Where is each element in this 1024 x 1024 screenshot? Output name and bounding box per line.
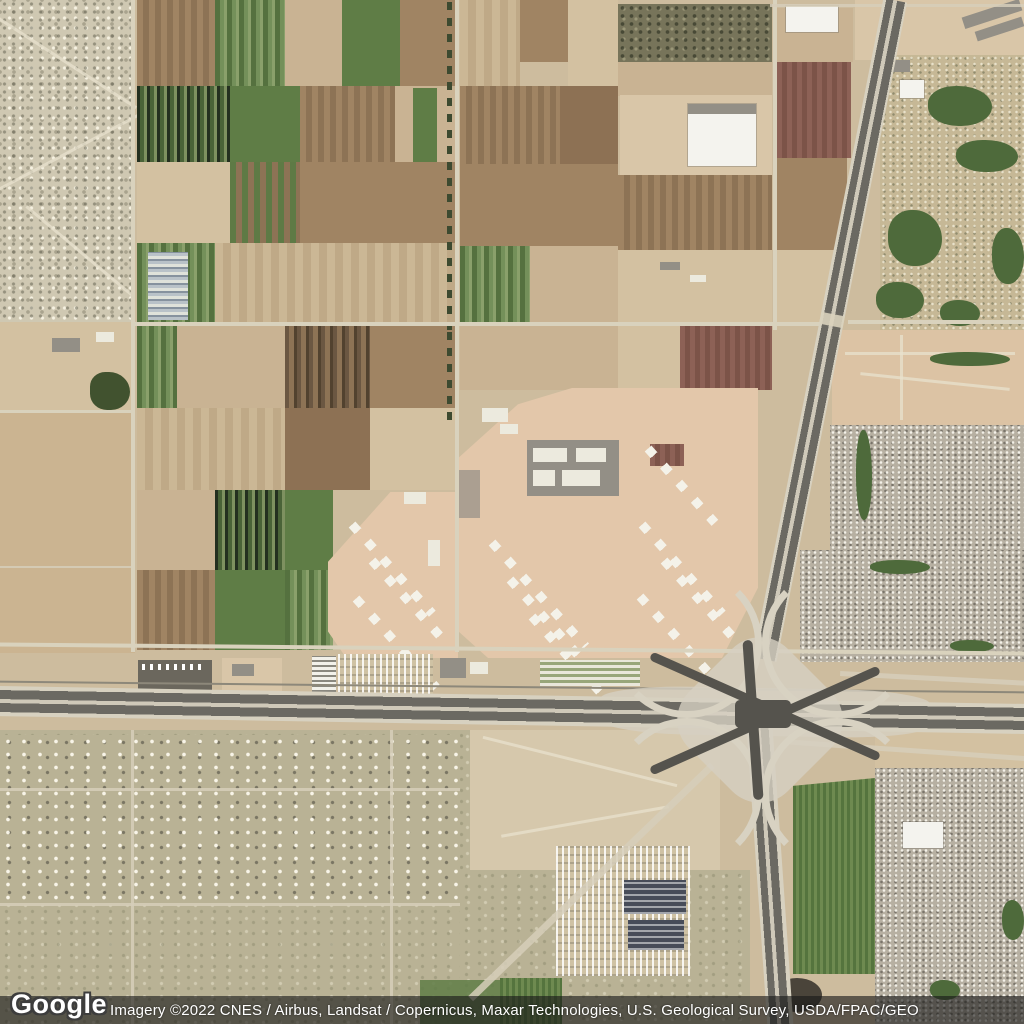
farm-field: [460, 164, 618, 246]
farm-field: [618, 250, 772, 322]
farm-field: [137, 490, 215, 570]
farm-field: [285, 490, 333, 570]
farm-building: [660, 262, 680, 270]
farm-building: [96, 332, 114, 342]
greenbelt-park: [930, 352, 1010, 366]
farm-field: [137, 326, 177, 408]
prison-support-building: [500, 424, 518, 434]
farm-field: [215, 490, 285, 570]
farm-field: [460, 0, 520, 86]
prison-building: [533, 448, 567, 462]
farm-field: [460, 326, 618, 390]
farm-field: [230, 162, 300, 243]
section-road: [131, 322, 831, 326]
subdivision-under-construction: [832, 330, 1024, 425]
farm-field: [560, 86, 618, 164]
farm-field: [300, 162, 455, 243]
farm-field: [285, 0, 342, 86]
prison-building: [562, 470, 600, 486]
farm-field: [370, 326, 455, 408]
golf-fairway: [956, 140, 1018, 172]
section-road: [848, 320, 1024, 324]
farm-field: [530, 246, 618, 322]
farm-field: [137, 0, 215, 86]
farm-field: [230, 86, 300, 162]
farm-field: [137, 162, 230, 243]
farm-field: [568, 0, 618, 86]
farm-field: [520, 0, 568, 62]
interchange-center: [735, 700, 791, 728]
farm-field: [413, 88, 437, 162]
warehouse-roof-edge: [688, 104, 756, 114]
satellite-map-canvas[interactable]: Imagery ©2022 CNES / Airbus, Landsat / C…: [0, 0, 1024, 1024]
farm-field: [215, 243, 455, 322]
farm-building: [690, 275, 706, 282]
warehouse-building: [786, 6, 838, 32]
farm-field: [370, 408, 455, 490]
bare-field: [0, 413, 135, 653]
farm-field: [137, 86, 230, 162]
farm-field: [618, 326, 680, 390]
rural-road: [0, 903, 460, 906]
interchange-ramp: [762, 568, 912, 718]
golf-fairway: [876, 282, 924, 318]
farm-building: [52, 338, 80, 352]
greenbelt-park: [870, 560, 930, 574]
interchange-ramp: [612, 718, 762, 868]
clubhouse-building: [900, 80, 924, 98]
greenhouses: [148, 252, 188, 320]
street: [900, 335, 903, 420]
scrub-field: [618, 4, 772, 62]
rural-road: [390, 730, 393, 1024]
prison-support-building: [404, 492, 426, 504]
farm-field: [215, 570, 285, 650]
section-road: [455, 0, 459, 652]
farm-field: [460, 86, 560, 164]
prison-support-building: [428, 540, 440, 566]
greenbelt-park: [1002, 900, 1024, 940]
rural-road: [131, 730, 134, 1024]
golf-fairway: [888, 210, 942, 266]
commercial-building: [440, 658, 466, 678]
field-track: [0, 566, 135, 568]
farm-field: [618, 175, 772, 250]
golf-fairway: [992, 228, 1024, 284]
commercial-building: [232, 664, 254, 676]
section-road: [773, 0, 777, 330]
farm-field: [777, 62, 851, 158]
prison-building: [576, 448, 606, 462]
farm-field: [285, 408, 370, 490]
farm-field: [215, 0, 285, 86]
google-logo[interactable]: Google: [11, 989, 107, 1020]
rural-road: [0, 788, 460, 791]
parking-lot: [456, 470, 480, 518]
farm-field: [342, 0, 400, 86]
tree-grove: [90, 372, 130, 410]
farm-field: [137, 570, 215, 650]
windbreak-tree-line: [447, 0, 452, 330]
farm-field: [300, 86, 395, 162]
windbreak-tree-line: [447, 330, 452, 420]
farm-field: [137, 408, 285, 490]
imagery-attribution-text: Imagery ©2022 CNES / Airbus, Landsat / C…: [110, 1002, 919, 1019]
golf-fairway: [928, 86, 992, 126]
rv-storage-building: [624, 880, 686, 914]
attribution-bar: Imagery ©2022 CNES / Airbus, Landsat / C…: [0, 996, 1024, 1024]
greenbelt-park: [856, 430, 872, 520]
truck-trailers-row: [142, 664, 202, 670]
farm-field: [285, 326, 370, 408]
farm-field: [460, 246, 530, 322]
commercial-building: [470, 662, 488, 674]
rv-storage-building: [628, 920, 684, 950]
farm-field: [285, 570, 333, 650]
residential-area-northwest: [0, 0, 131, 322]
prison-building: [533, 470, 555, 486]
farm-field: [618, 62, 772, 96]
farm-field: [177, 326, 285, 408]
farm-field: [680, 326, 772, 390]
school-building: [903, 822, 943, 848]
prison-support-building: [482, 408, 508, 422]
section-road: [131, 0, 135, 652]
